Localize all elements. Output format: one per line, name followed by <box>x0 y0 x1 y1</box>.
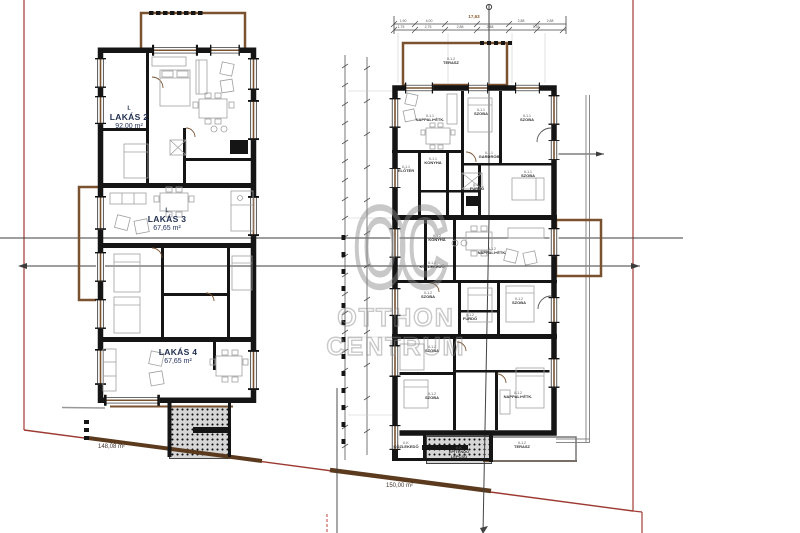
room-name: NAPPALI+ÉTK. <box>504 395 533 400</box>
bottom-terrace-outline <box>492 437 576 461</box>
parcel-boundary-lines <box>24 0 642 533</box>
room-label: II-1.2TERASZ <box>514 441 530 450</box>
room-name: KÖZLEKEDŐ <box>393 445 418 450</box>
unit-label-lakas2: I. LAKÁS 2 92,00 m² <box>110 106 148 131</box>
retaining-wall-lines <box>556 95 590 443</box>
room-name: NAPPALI+ÉTK. <box>416 118 445 123</box>
room-label: II-1.1SZOBA <box>474 108 488 117</box>
room-label: II-1.1SZOBA <box>521 170 535 179</box>
room-label: II-KKÖZLEKEDŐ <box>393 441 418 450</box>
room-name: ELŐTÉR <box>398 169 414 174</box>
reference-arrows <box>18 152 640 270</box>
unit-area: 67,65 m² <box>148 225 186 233</box>
dimension-value: 2,88 <box>518 19 525 23</box>
room-name: KÖZLEKEDŐ <box>419 265 444 270</box>
room-name: SZOBA <box>474 112 488 117</box>
room-label: II-1.2KÖZLEKEDŐ <box>419 261 444 270</box>
room-name: TERASZ <box>443 61 459 66</box>
room-name: SZOBA <box>425 349 439 354</box>
room-label: II-1.2SZOBA <box>425 392 439 401</box>
room-name: SZOBA <box>520 118 534 123</box>
room-name: SZOBA <box>512 301 526 306</box>
room-label: II-1.2SZOBA <box>425 345 439 354</box>
unit-label-lakas3: I. LAKÁS 3 67,65 m² <box>148 208 186 233</box>
room-name: SZOBA <box>521 174 535 179</box>
dimension-value: 1,90 <box>400 19 407 23</box>
room-label: II-1.1FÜRDŐ <box>470 183 484 192</box>
room-name: KONYHA <box>424 161 441 166</box>
unit-name: LAKÁS 3 <box>148 215 186 225</box>
room-name: NAPPALI+ÉTK. <box>478 251 507 256</box>
room-label: II-1.1NAPPALI+ÉTK. <box>416 114 445 123</box>
floorplan-canvas: I. LAKÁS 2 92,00 m² I. LAKÁS 3 67,65 m² … <box>0 0 800 533</box>
dimension-value: 2,88 <box>547 19 554 23</box>
room-label: II-1.1GARDRÓB <box>479 151 500 160</box>
room-name: SZOBA <box>421 295 435 300</box>
plan-linework <box>0 0 800 533</box>
dimension-value: 2,88 <box>487 25 494 29</box>
unit-name: LAKÁS 4 <box>159 348 197 358</box>
room-label: II-1.2TERASZ <box>443 57 459 66</box>
dimension-value: 1,35 <box>533 25 540 29</box>
right-parcel-area: 150,00 m² <box>386 483 413 489</box>
room-name: FÜRDŐ <box>470 187 484 192</box>
room-name: KONYHA <box>428 238 445 243</box>
dimension-value: 1,75 <box>398 25 405 29</box>
room-label: II-1.2NAPPALI+ÉTK. <box>478 247 507 256</box>
unit-area: 67,65 m² <box>159 358 197 366</box>
left-parcel-area: 148,08 m² <box>98 444 125 450</box>
dimension-value: 2,75 <box>425 25 432 29</box>
dimension-total: 17,63 <box>468 14 479 19</box>
room-name: SZOBA <box>425 396 439 401</box>
room-label: II-1.1ELŐTÉR <box>398 165 414 174</box>
dimension-value: 4,00 <box>426 19 433 23</box>
unit-area: 92,00 m² <box>110 123 148 131</box>
room-name: TERASZ <box>514 445 530 450</box>
room-label: II-1.2FÜRDŐ <box>463 313 477 322</box>
room-label: II-1.2KONYHA <box>428 234 445 243</box>
room-label: II-1.1SZOBA <box>520 114 534 123</box>
room-name: ÉPÍTENDŐ LÉPCSŐ <box>444 450 474 459</box>
unit-label-lakas4: LAKÁS 4 67,65 m² <box>159 348 197 366</box>
room-label: II-KÉPÍTENDŐ LÉPCSŐ <box>444 446 474 459</box>
room-name: GARDRÓB <box>479 155 500 160</box>
room-label: II-1.2SZOBA <box>512 297 526 306</box>
terrace-outlines <box>79 13 601 300</box>
unit-name: LAKÁS 2 <box>110 113 148 123</box>
room-label: II-1.2NAPPALI+ÉTK. <box>504 391 533 400</box>
room-label: II-1.1KONYHA <box>424 157 441 166</box>
dimension-value: 2,88 <box>457 25 464 29</box>
room-label: II-1.2SZOBA <box>421 291 435 300</box>
room-name: FÜRDŐ <box>463 317 477 322</box>
